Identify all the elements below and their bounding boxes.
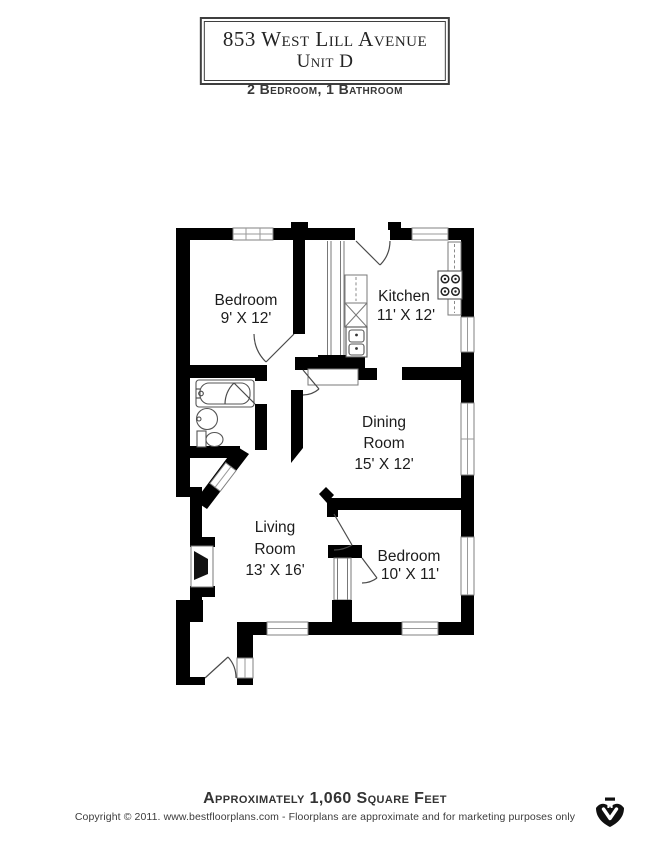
toilet-symbol bbox=[197, 431, 223, 447]
door-entry bbox=[205, 657, 236, 678]
porch-stub-left bbox=[291, 222, 308, 230]
hall-closet bbox=[308, 369, 358, 385]
living-label-line2: Room bbox=[254, 541, 295, 558]
kitchen-dims: 11' X 12' bbox=[377, 307, 435, 324]
floorplan-page: 853 West Lill Avenue Unit D 2 Bedroom, 1… bbox=[0, 0, 650, 842]
kitchen-sink-symbol bbox=[346, 327, 367, 357]
stair-shaft bbox=[326, 240, 346, 355]
window-living-bottom bbox=[267, 622, 308, 635]
window-bedroom1-top bbox=[233, 228, 273, 240]
bathroom-sink-symbol bbox=[197, 409, 218, 430]
bedroom1-label: Bedroom bbox=[215, 292, 278, 309]
door-bedroom2-closet bbox=[362, 558, 377, 583]
living-label-line1: Living bbox=[255, 519, 296, 536]
porch-stub-right bbox=[388, 222, 401, 230]
door-kitchen-back bbox=[356, 241, 390, 265]
window-kitchen-top bbox=[412, 228, 448, 240]
dining-dims: 15' X 12' bbox=[354, 456, 413, 473]
floorplan-drawing: Bedroom 9' X 12' Kitchen 11' X 12' Dinin… bbox=[0, 0, 650, 842]
kitchen-counter-symbol bbox=[345, 275, 367, 327]
copyright-text: Copyright © 2011. www.bestfloorplans.com… bbox=[0, 811, 650, 823]
square-footage-text: Approximately 1,060 Square Feet bbox=[0, 790, 650, 808]
door-bedroom1 bbox=[254, 334, 294, 362]
dining-label-line1: Dining bbox=[362, 414, 406, 431]
bedroom2-dims: 10' X 11' bbox=[381, 566, 439, 583]
kitchen-label: Kitchen bbox=[378, 288, 430, 305]
stove-symbol bbox=[438, 271, 462, 299]
dining-label-line2: Room bbox=[363, 435, 404, 452]
door-bedroom2 bbox=[334, 514, 352, 550]
bathroom-fixtures bbox=[196, 380, 254, 447]
fireplace-symbol bbox=[191, 546, 213, 587]
bedroom2-label: Bedroom bbox=[378, 548, 441, 565]
window-dining-right bbox=[461, 403, 474, 475]
window-vestibule bbox=[237, 658, 253, 678]
bedroom1-dims: 9' X 12' bbox=[221, 310, 272, 327]
window-bedroom2-right bbox=[461, 537, 474, 595]
bestfloorplans-logo-icon bbox=[592, 796, 628, 832]
bedroom2-closet bbox=[334, 558, 351, 600]
window-kitchen-right bbox=[461, 317, 474, 352]
living-dims: 13' X 16' bbox=[245, 562, 304, 579]
window-bedroom2-bottom bbox=[402, 622, 438, 635]
